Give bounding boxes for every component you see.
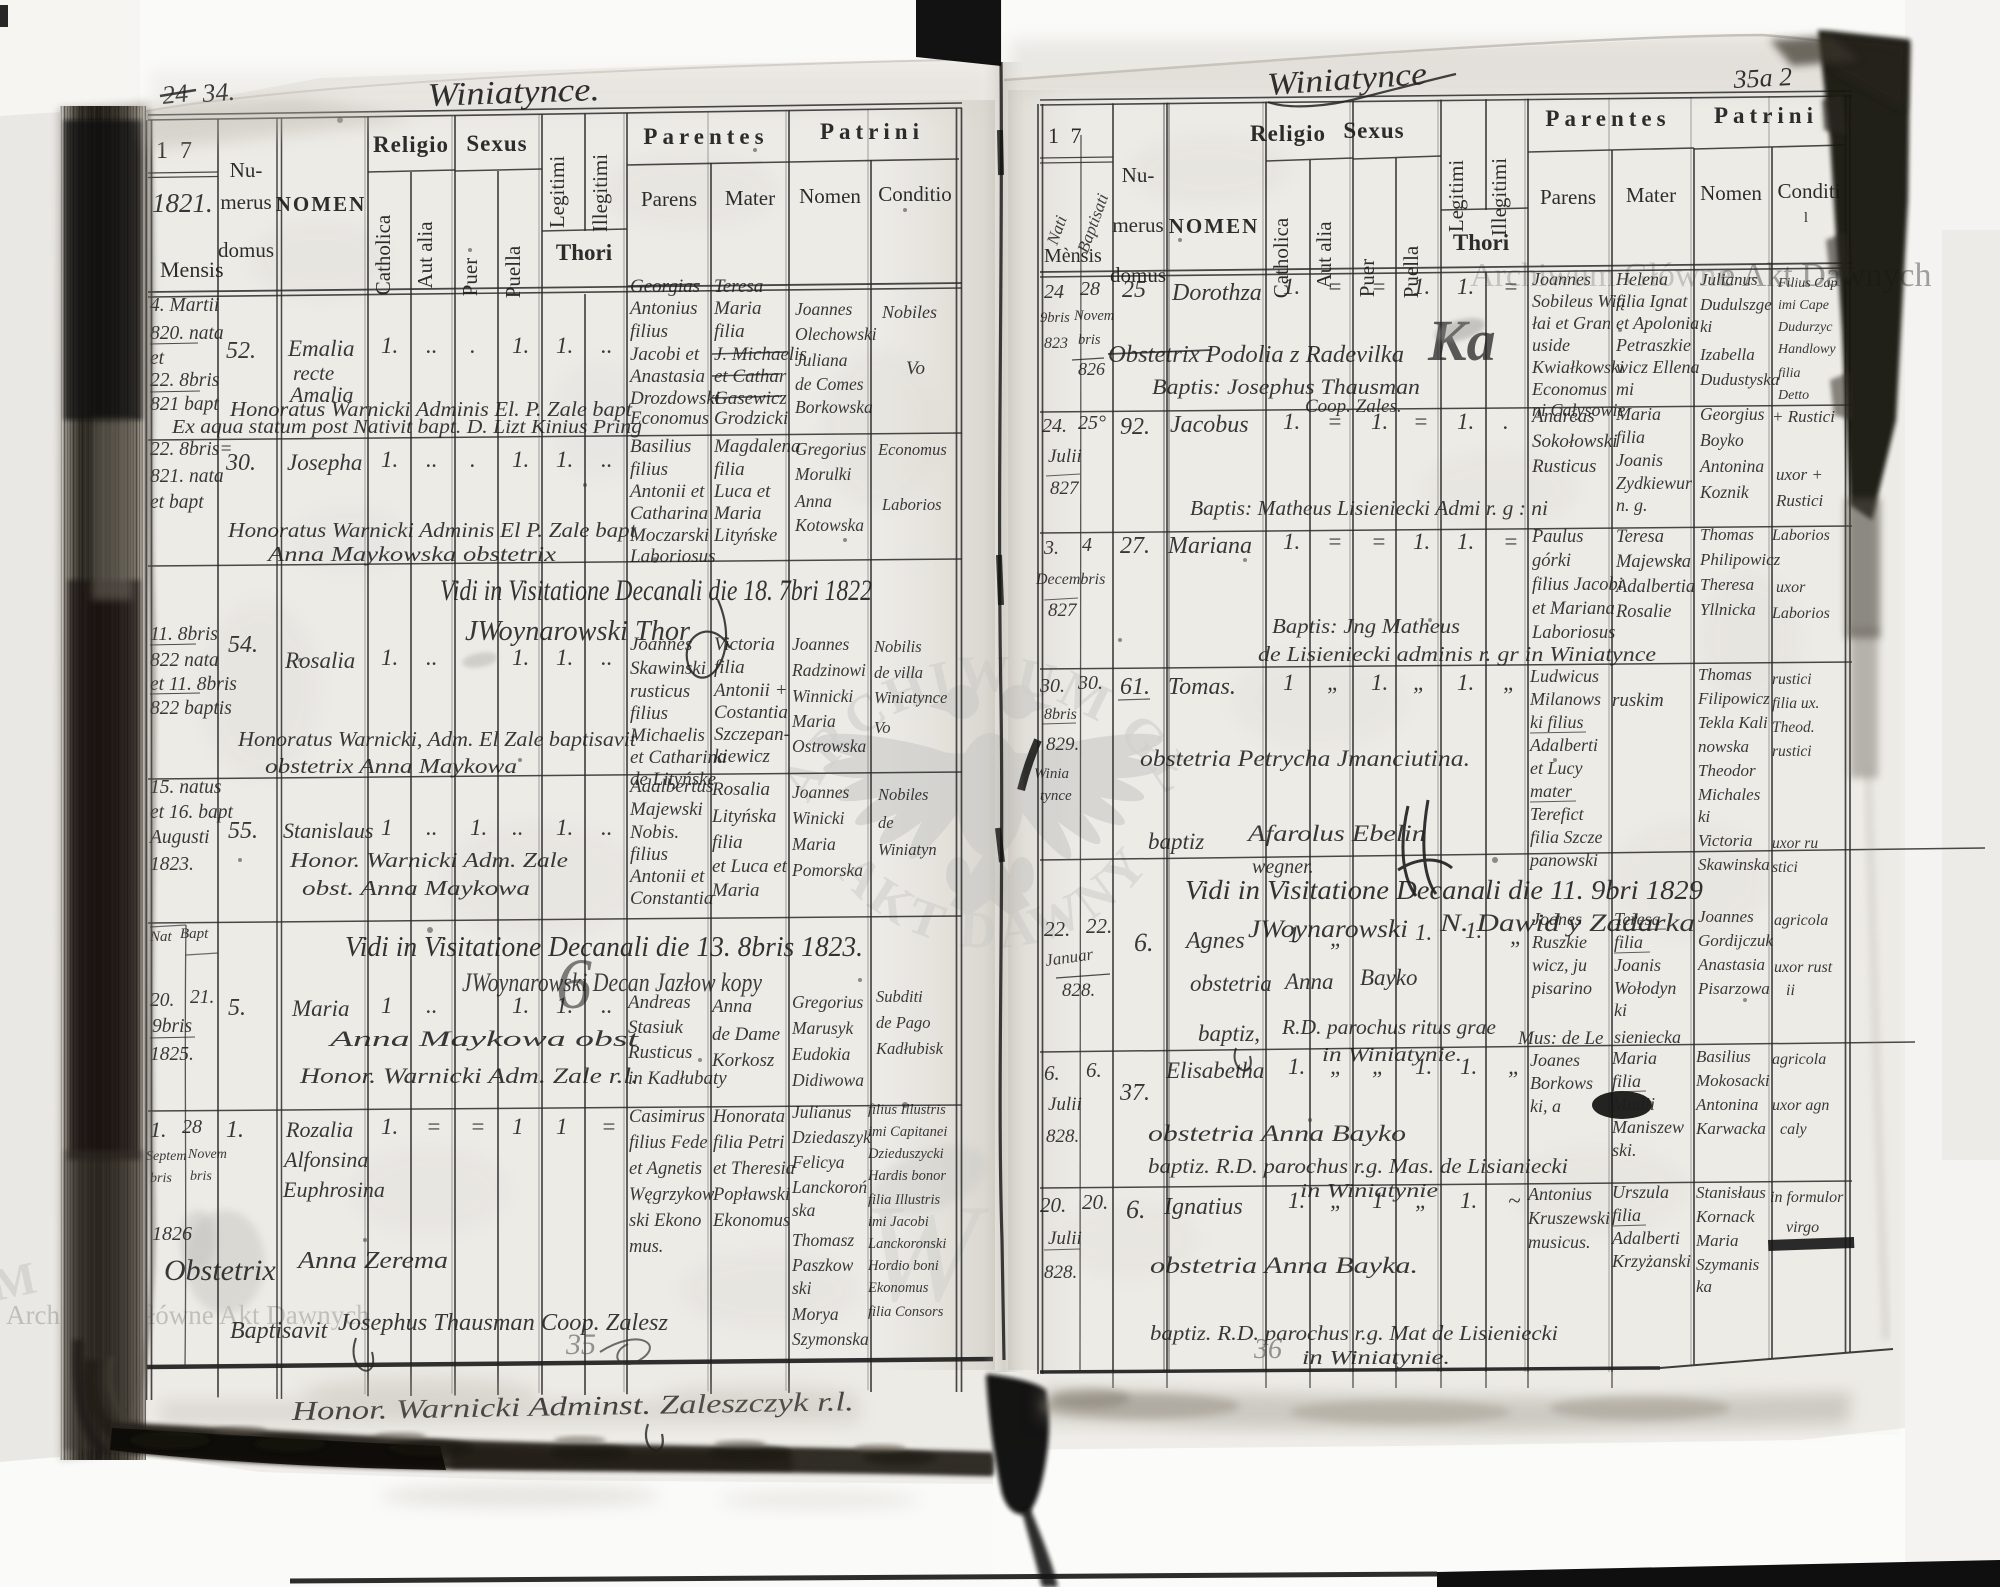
svg-text:Majewska: Majewska xyxy=(1615,552,1691,572)
svg-text:baptiz. R.D. parochus r.g. Mat: baptiz. R.D. parochus r.g. Mat de Lisien… xyxy=(1150,1321,1558,1345)
svg-text:Honor. Warnicki Adm. Zale: Honor. Warnicki Adm. Zale xyxy=(289,848,568,872)
svg-text:Legitimi: Legitimi xyxy=(1444,160,1468,232)
svg-text:Aut alia: Aut alia xyxy=(413,221,437,289)
svg-text:Winiatyn: Winiatyn xyxy=(878,840,937,859)
svg-text:Thori: Thori xyxy=(1453,230,1510,255)
svg-text:828.: 828. xyxy=(1044,1262,1077,1283)
svg-text:Antonii et: Antonii et xyxy=(628,866,705,887)
svg-text:Tekla Kali: Tekla Kali xyxy=(1698,713,1768,732)
svg-text:Emalia: Emalia xyxy=(287,336,354,361)
svg-text:=: = xyxy=(1413,409,1429,434)
svg-text:in formulor: in formulor xyxy=(1770,1189,1844,1206)
svg-text:Krzyżanski: Krzyżanski xyxy=(1611,1251,1691,1271)
svg-text:Parentes: Parentes xyxy=(1545,106,1670,131)
svg-text:..: .. xyxy=(512,815,524,840)
svg-text:Ekonomus: Ekonomus xyxy=(712,1211,790,1231)
svg-text:Rosalia: Rosalia xyxy=(284,648,355,673)
svg-text:Lityńska: Lityńska xyxy=(711,806,776,827)
svg-text:Basilius: Basilius xyxy=(1696,1047,1751,1066)
svg-text:filius Jacobi: filius Jacobi xyxy=(1532,575,1623,595)
svg-text:Dziedaszyk: Dziedaszyk xyxy=(791,1127,872,1147)
svg-text:tynce: tynce xyxy=(1040,788,1072,804)
svg-text:et 11. 8bris: et 11. 8bris xyxy=(150,674,237,695)
svg-text:„: „ xyxy=(1330,926,1343,951)
svg-text:„: „ xyxy=(1510,924,1523,949)
svg-text:„: „ xyxy=(1372,1054,1385,1079)
svg-text:mus.: mus. xyxy=(629,1237,663,1257)
svg-text:Joannes: Joannes xyxy=(792,782,850,802)
svg-text:de Comes: de Comes xyxy=(795,374,864,394)
svg-text:Honorata: Honorata xyxy=(712,1107,785,1127)
svg-text:Nomen: Nomen xyxy=(1700,181,1762,205)
svg-text:35: 35 xyxy=(565,1328,596,1361)
svg-text:górki: górki xyxy=(1532,551,1571,571)
svg-text:Joannes: Joannes xyxy=(792,634,850,654)
svg-text:Julianus: Julianus xyxy=(1700,270,1758,289)
svg-text:1.: 1. xyxy=(556,333,573,358)
svg-text:filia: filia xyxy=(1612,1071,1641,1091)
svg-text:20.: 20. xyxy=(1040,1193,1066,1217)
svg-text:et Theresia: et Theresia xyxy=(713,1159,795,1179)
svg-text:panowski: panowski xyxy=(1528,850,1598,870)
svg-text:Euphrosina: Euphrosina xyxy=(282,1177,385,1202)
svg-text:n. g.: n. g. xyxy=(1616,495,1648,515)
svg-text:et Apolonia: et Apolonia xyxy=(1616,313,1699,333)
svg-text:Sexus: Sexus xyxy=(1343,118,1404,143)
svg-text:Paszkow: Paszkow xyxy=(791,1255,854,1275)
svg-text:de Lisieniecki adminis r. gr i: de Lisieniecki adminis r. gr in Winiatyn… xyxy=(1258,642,1656,666)
svg-text:821. nata: 821. nata xyxy=(150,466,224,487)
svg-text:8bris: 8bris xyxy=(1044,706,1077,723)
svg-text:1.: 1. xyxy=(1457,409,1474,434)
svg-text:Anna Maykowska obstetrix: Anna Maykowska obstetrix xyxy=(265,542,556,566)
svg-text:=: = xyxy=(1503,274,1519,299)
svg-text:Thomasz: Thomasz xyxy=(792,1230,854,1250)
svg-text:Teresa: Teresa xyxy=(714,276,763,297)
svg-text:Constantia: Constantia xyxy=(630,888,713,909)
svg-text:Maria: Maria xyxy=(291,996,350,1021)
svg-text:828.: 828. xyxy=(1062,980,1095,1001)
svg-text:22.: 22. xyxy=(1044,917,1070,941)
svg-text:Rustici: Rustici xyxy=(1775,491,1823,510)
svg-text:„: „ xyxy=(1413,670,1426,695)
svg-text:1.: 1. xyxy=(556,645,573,670)
svg-text:et Luca et: et Luca et xyxy=(712,856,788,877)
svg-text:Felicya: Felicya xyxy=(791,1152,845,1172)
svg-text:NOMEN: NOMEN xyxy=(276,192,367,216)
svg-text:Joannes: Joannes xyxy=(795,299,853,319)
svg-text:filius: filius xyxy=(630,459,668,480)
svg-text:„: „ xyxy=(1508,1054,1521,1079)
svg-text:agricola: agricola xyxy=(1772,1051,1826,1068)
svg-text:Milanows: Milanows xyxy=(1529,689,1601,709)
svg-text:Petraszkie: Petraszkie xyxy=(1615,335,1691,355)
svg-text:=: = xyxy=(470,1114,486,1139)
svg-text:1.: 1. xyxy=(381,1114,398,1139)
svg-text:Anna: Anna xyxy=(710,996,752,1017)
svg-text:obst. Anna Maykowa: obst. Anna Maykowa xyxy=(302,876,530,900)
svg-text:25°: 25° xyxy=(1078,412,1106,434)
svg-text:Didiwowa: Didiwowa xyxy=(791,1070,864,1090)
svg-text:Joanis: Joanis xyxy=(1614,955,1661,975)
svg-text:Majewski: Majewski xyxy=(629,799,703,820)
svg-text:Maria: Maria xyxy=(711,880,760,901)
svg-text:Antonius: Antonius xyxy=(628,298,698,319)
svg-text:obstetrix Anna Maykowa: obstetrix Anna Maykowa xyxy=(265,754,517,778)
svg-text:łai et Gran: łai et Gran xyxy=(1532,313,1611,333)
svg-text:Augusti: Augusti xyxy=(148,827,210,848)
svg-text:Lanckoroń: Lanckoroń xyxy=(791,1177,867,1197)
svg-text:musicus.: musicus. xyxy=(1528,1232,1591,1252)
svg-text:Victoria: Victoria xyxy=(714,634,775,655)
svg-text:Puella: Puella xyxy=(501,245,525,298)
svg-text:JWoynarowski: JWoynarowski xyxy=(1248,916,1408,943)
svg-text:de villa: de villa xyxy=(874,663,923,682)
svg-text:Laborios: Laborios xyxy=(881,495,942,514)
svg-text:1: 1 xyxy=(1372,1188,1384,1213)
svg-text:Zydkiewur: Zydkiewur xyxy=(1616,473,1693,493)
svg-text:Skawinski: Skawinski xyxy=(630,658,706,679)
svg-text:l: l xyxy=(1804,210,1808,226)
svg-text:Bapt: Bapt xyxy=(180,926,209,942)
svg-text:filia: filia xyxy=(1614,932,1643,952)
svg-text:9bris: 9bris xyxy=(152,1016,192,1037)
svg-text:uxor +: uxor + xyxy=(1776,465,1823,484)
svg-text:11. 8bris: 11. 8bris xyxy=(150,624,218,645)
svg-text:Adalberti: Adalberti xyxy=(1529,735,1598,755)
svg-text:Terefict: Terefict xyxy=(1530,804,1585,824)
svg-text:Parentes: Parentes xyxy=(643,124,768,149)
svg-text:Jacobi et: Jacobi et xyxy=(630,344,700,365)
svg-text:9bris: 9bris xyxy=(1040,310,1070,326)
svg-text:bris: bris xyxy=(190,1169,212,1184)
svg-text:1 7: 1 7 xyxy=(1048,123,1085,148)
svg-text:Szymanis: Szymanis xyxy=(1696,1255,1760,1274)
svg-text:Alfonsina: Alfonsina xyxy=(282,1147,368,1172)
svg-text:55.: 55. xyxy=(228,818,258,844)
svg-text:Winiatynce.: Winiatynce. xyxy=(427,72,600,114)
svg-text:Afarolus Ebelin: Afarolus Ebelin xyxy=(1246,821,1426,846)
svg-text:Yllnicka: Yllnicka xyxy=(1700,600,1756,619)
svg-text:Maria: Maria xyxy=(791,711,836,731)
svg-text:kiewicz: kiewicz xyxy=(714,746,771,767)
svg-text:Antonina: Antonina xyxy=(1695,1095,1758,1114)
svg-text:Mokosacki: Mokosacki xyxy=(1695,1071,1770,1090)
svg-text:Michaelis: Michaelis xyxy=(629,725,705,746)
svg-text:Agnes: Agnes xyxy=(1184,928,1245,954)
svg-text:822 nata: 822 nata xyxy=(150,650,219,671)
svg-text:filia Szcze: filia Szcze xyxy=(1530,827,1603,847)
svg-text:baptiz,: baptiz, xyxy=(1198,1021,1260,1046)
svg-text:Puer: Puer xyxy=(458,258,482,297)
svg-text:Honoratus Warnicki Adminis El: Honoratus Warnicki Adminis El P. Zale ba… xyxy=(227,518,637,542)
svg-text:filia Illustris: filia Illustris xyxy=(868,1192,940,1208)
svg-text:=: = xyxy=(601,1114,617,1139)
svg-text:et bapt: et bapt xyxy=(150,492,204,513)
svg-text:Illegitimi: Illegitimi xyxy=(1487,158,1511,236)
svg-text:Maria: Maria xyxy=(1615,404,1661,424)
svg-text:Anna: Anna xyxy=(1283,969,1334,994)
svg-text:Mensis: Mensis xyxy=(160,257,224,282)
svg-text:ski.: ski. xyxy=(1612,1140,1637,1160)
svg-text:=: = xyxy=(1327,529,1343,554)
svg-text:Julianus: Julianus xyxy=(792,1102,851,1122)
svg-text:ski: ski xyxy=(792,1278,812,1298)
svg-text:R.D. parochus ritus grae: R.D. parochus ritus grae xyxy=(1281,1015,1496,1039)
svg-text:1825.: 1825. xyxy=(150,1044,194,1065)
svg-text:filia: filia xyxy=(1778,366,1801,381)
svg-text:Dudustyska: Dudustyska xyxy=(1699,370,1779,389)
svg-text:829.: 829. xyxy=(1046,734,1079,755)
svg-text:52.: 52. xyxy=(226,338,256,364)
svg-text:Szczepan-: Szczepan- xyxy=(714,724,790,745)
svg-text:Julii: Julii xyxy=(1048,1228,1082,1249)
svg-text:Mariana: Mariana xyxy=(1167,533,1252,559)
svg-text:1.: 1. xyxy=(1457,529,1474,554)
svg-text:1: 1 xyxy=(1283,670,1295,695)
svg-text:ski Ekono: ski Ekono xyxy=(629,1211,701,1231)
svg-text:1.: 1. xyxy=(1371,670,1388,695)
svg-text:Maria: Maria xyxy=(713,503,762,524)
svg-text:1.: 1. xyxy=(1413,529,1430,554)
svg-text:Detto: Detto xyxy=(1777,388,1809,403)
svg-text:virgo: virgo xyxy=(1786,1219,1819,1236)
svg-text:stici: stici xyxy=(1772,859,1798,876)
svg-text:Filipowicz: Filipowicz xyxy=(1697,689,1770,708)
svg-text:+ Rustici: + Rustici xyxy=(1772,407,1835,426)
svg-text:Antonina: Antonina xyxy=(1699,456,1764,476)
svg-text:et Catharina: et Catharina xyxy=(630,747,727,768)
svg-text:Laborios: Laborios xyxy=(1771,527,1830,544)
svg-text:=: = xyxy=(1503,529,1519,554)
svg-text:1.: 1. xyxy=(556,815,573,840)
svg-text:Juliana: Juliana xyxy=(795,350,848,370)
svg-text:Vidi in Visitatione Decanali d: Vidi in Visitatione Decanali die 18. 7br… xyxy=(440,574,872,607)
svg-text:merus: merus xyxy=(220,190,271,214)
svg-text:Joannes: Joannes xyxy=(1698,907,1754,926)
svg-text:Joannes: Joannes xyxy=(1532,269,1591,289)
svg-text:1.: 1. xyxy=(1415,920,1432,945)
svg-text:Wołodyn: Wołodyn xyxy=(1614,978,1676,998)
svg-text:Kruszewski: Kruszewski xyxy=(1527,1208,1610,1228)
svg-text:Julii: Julii xyxy=(1048,446,1082,467)
svg-text:Gregorius: Gregorius xyxy=(792,992,863,1012)
svg-text:filia Petri: filia Petri xyxy=(713,1133,784,1153)
svg-text:uxor: uxor xyxy=(1776,579,1806,596)
svg-text:et Mariana: et Mariana xyxy=(1532,599,1615,619)
svg-text:820. nata: 820. nata xyxy=(150,323,224,344)
svg-text:ki: ki xyxy=(1698,807,1711,826)
svg-text:baptiz. R.D. parochus r.g. Mas: baptiz. R.D. parochus r.g. Mas. de Lisia… xyxy=(1148,1154,1568,1178)
svg-text:Ekonomus: Ekonomus xyxy=(867,1280,929,1296)
svg-text:Maria: Maria xyxy=(1695,1231,1739,1250)
svg-text:obstetria Anna Bayka.: obstetria Anna Bayka. xyxy=(1150,1253,1418,1278)
svg-text:Lanckoronski: Lanckoronski xyxy=(867,1236,946,1252)
svg-text:Georgias: Georgias xyxy=(630,276,700,297)
svg-text:Theresa: Theresa xyxy=(1700,575,1754,594)
svg-text:„: „ xyxy=(1327,670,1340,695)
svg-text:Moczarski: Moczarski xyxy=(629,525,709,546)
svg-text:Kornack: Kornack xyxy=(1695,1207,1755,1226)
svg-text:mi: mi xyxy=(1616,379,1634,399)
svg-text:30.: 30. xyxy=(225,450,256,476)
svg-text:Ka: Ka xyxy=(1427,308,1496,373)
svg-text:uside: uside xyxy=(1532,335,1570,355)
svg-text:Kotowska: Kotowska xyxy=(794,515,864,535)
svg-text:Patrini: Patrini xyxy=(820,119,924,144)
svg-text:Georgius: Georgius xyxy=(1700,404,1765,424)
svg-text:Szymonska: Szymonska xyxy=(792,1329,869,1349)
svg-text:filius: filius xyxy=(630,844,668,865)
svg-text:Julii: Julii xyxy=(1048,1094,1082,1115)
svg-text:Obstetrix: Obstetrix xyxy=(164,1254,276,1287)
svg-text:6.: 6. xyxy=(1126,1195,1146,1224)
svg-text:Casimirus: Casimirus xyxy=(629,1107,705,1127)
svg-text:Jacobus: Jacobus xyxy=(1170,412,1249,438)
svg-text:Baptis: Jng Matheus: Baptis: Jng Matheus xyxy=(1272,614,1460,638)
svg-text:Helena: Helena xyxy=(1615,269,1668,289)
svg-text:Vo: Vo xyxy=(906,358,925,379)
svg-text:Honoratus Warnicki, Adm. El Za: Honoratus Warnicki, Adm. El Zale baptisa… xyxy=(237,727,637,751)
svg-text:1826: 1826 xyxy=(152,1223,192,1245)
svg-text:Nobiles: Nobiles xyxy=(881,302,937,322)
svg-text:Maria: Maria xyxy=(713,298,762,319)
svg-text:Grodzicki: Grodzicki xyxy=(714,408,788,429)
svg-text:ki: ki xyxy=(1614,1000,1627,1020)
svg-text:Victoria: Victoria xyxy=(1698,831,1752,850)
svg-text:1.: 1. xyxy=(512,333,529,358)
svg-text:filia: filia xyxy=(1612,1205,1641,1225)
svg-text:bris: bris xyxy=(1078,332,1101,348)
svg-text:Sokołowski: Sokołowski xyxy=(1532,431,1618,452)
svg-text:Josepha: Josepha xyxy=(287,450,362,475)
svg-text:=: = xyxy=(1371,529,1387,554)
svg-text:24: 24 xyxy=(1044,281,1064,303)
svg-text:Mus: de Le: Mus: de Le xyxy=(1517,1028,1603,1049)
svg-text:Mater: Mater xyxy=(1626,183,1676,207)
svg-text:Anna Zerema: Anna Zerema xyxy=(296,1248,448,1274)
svg-text:1.: 1. xyxy=(1283,274,1300,299)
svg-text:filius Fede: filius Fede xyxy=(629,1133,708,1153)
svg-text:Luca et: Luca et xyxy=(713,481,771,502)
svg-text:uxor ru: uxor ru xyxy=(1772,835,1818,852)
svg-text:Dzieduszycki: Dzieduszycki xyxy=(867,1146,944,1162)
svg-text:Rosalia: Rosalia xyxy=(711,779,770,800)
svg-text:Anna: Anna xyxy=(794,491,832,511)
svg-text:24.: 24. xyxy=(1042,415,1067,437)
svg-text:Thomas: Thomas xyxy=(1698,665,1752,684)
svg-text:=: = xyxy=(1327,409,1343,434)
svg-text:Religio: Religio xyxy=(373,132,449,157)
svg-text:Basilius: Basilius xyxy=(630,436,691,457)
svg-text:21.: 21. xyxy=(190,987,214,1008)
svg-text:ki, a: ki, a xyxy=(1530,1096,1561,1116)
svg-text:22. 8bris: 22. 8bris xyxy=(150,370,219,391)
svg-text:1823.: 1823. xyxy=(150,854,194,875)
svg-text:Nobilis: Nobilis xyxy=(873,637,922,656)
svg-text:filia Ignat: filia Ignat xyxy=(1616,291,1688,311)
svg-text:.: . xyxy=(470,447,476,472)
svg-text:wicz Ellena: wicz Ellena xyxy=(1616,357,1700,377)
svg-text:1: 1 xyxy=(381,993,393,1018)
svg-text:Laborios: Laborios xyxy=(1771,605,1830,622)
svg-text:Joanes: Joanes xyxy=(1532,909,1582,929)
svg-text:obstetria: obstetria xyxy=(1190,971,1272,996)
svg-text:Maria: Maria xyxy=(1611,1048,1657,1068)
svg-text:imi Jacobi: imi Jacobi xyxy=(868,1214,929,1230)
svg-text:1: 1 xyxy=(512,1114,524,1139)
svg-text:821 bapt: 821 bapt xyxy=(150,394,219,415)
svg-text:Honor. Warnicki Adm. Zale r.l.: Honor. Warnicki Adm. Zale r.l. xyxy=(299,1063,638,1088)
svg-text:Borkows: Borkows xyxy=(1530,1073,1593,1093)
svg-text:28: 28 xyxy=(182,1116,202,1138)
svg-text:28: 28 xyxy=(1080,278,1100,300)
svg-text:Joanes: Joanes xyxy=(1530,1050,1580,1070)
svg-text:1.: 1. xyxy=(1460,1054,1477,1079)
svg-text:Koznik: Koznik xyxy=(1699,482,1750,502)
svg-text:Parens: Parens xyxy=(641,187,697,211)
svg-text:20.: 20. xyxy=(1082,1190,1108,1214)
svg-text:Novem: Novem xyxy=(1073,308,1114,324)
svg-text:1.: 1. xyxy=(512,645,529,670)
svg-text:Adalberti: Adalberti xyxy=(1611,1228,1680,1248)
svg-text:filia: filia xyxy=(714,459,745,480)
svg-text:1.: 1. xyxy=(1413,274,1430,299)
svg-text:1.: 1. xyxy=(1465,918,1482,943)
svg-text:Conditi: Conditi xyxy=(1777,179,1840,203)
svg-text:Antonii +: Antonii + xyxy=(712,680,788,701)
svg-text:filia: filia xyxy=(712,832,743,853)
svg-text:Antonius: Antonius xyxy=(1527,1184,1592,1204)
svg-text:1.: 1. xyxy=(1371,409,1388,434)
svg-text:~: ~ xyxy=(1508,1188,1521,1213)
svg-text:Baptisavit: Baptisavit xyxy=(230,1318,329,1344)
svg-text:Stanisłaus: Stanisłaus xyxy=(1696,1183,1766,1202)
svg-text:Joannes: Joannes xyxy=(630,634,692,655)
svg-text:ki filius: ki filius xyxy=(1530,712,1584,732)
svg-text:..: .. xyxy=(601,645,613,670)
svg-text:=: = xyxy=(426,1114,442,1139)
svg-text:obstetria Anna Bayko: obstetria Anna Bayko xyxy=(1148,1121,1406,1146)
svg-text:caly: caly xyxy=(1780,1121,1808,1138)
svg-text:..: .. xyxy=(601,333,613,358)
svg-text:827: 827 xyxy=(1048,600,1078,621)
svg-text:6.: 6. xyxy=(1134,928,1154,957)
svg-text:Nobis.: Nobis. xyxy=(629,822,679,843)
svg-text:Dudulszge: Dudulszge xyxy=(1699,295,1772,314)
svg-text:filia: filia xyxy=(714,657,745,678)
svg-text:Winnicki: Winnicki xyxy=(792,686,853,706)
svg-text:Maniszew: Maniszew xyxy=(1611,1117,1684,1137)
svg-text:wicz, ju: wicz, ju xyxy=(1532,955,1587,975)
svg-text:..: .. xyxy=(426,447,438,472)
svg-text:Subditi: Subditi xyxy=(876,987,923,1006)
svg-text:Korkosz: Korkosz xyxy=(711,1050,775,1071)
svg-text:1.: 1. xyxy=(1288,1188,1305,1213)
svg-text:filia ux.: filia ux. xyxy=(1772,695,1819,712)
svg-text:..: .. xyxy=(426,645,438,670)
svg-text:30.: 30. xyxy=(1039,675,1065,697)
svg-text:Drozdowski: Drozdowski xyxy=(629,388,720,409)
svg-text:Thomas: Thomas xyxy=(1700,525,1754,544)
svg-text:„: „ xyxy=(1330,1054,1343,1079)
svg-text:4. Martii: 4. Martii xyxy=(150,295,219,316)
svg-text:Gasewicz: Gasewicz xyxy=(714,388,787,409)
svg-text:Obstetrix Podolia z Radevilka: Obstetrix Podolia z Radevilka xyxy=(1108,342,1404,368)
svg-text:Skawinska: Skawinska xyxy=(1698,855,1770,874)
svg-text:Baptis: Matheus Lisieniecki Ad: Baptis: Matheus Lisieniecki Admi r. g : … xyxy=(1190,496,1548,520)
svg-text:..: .. xyxy=(601,447,613,472)
